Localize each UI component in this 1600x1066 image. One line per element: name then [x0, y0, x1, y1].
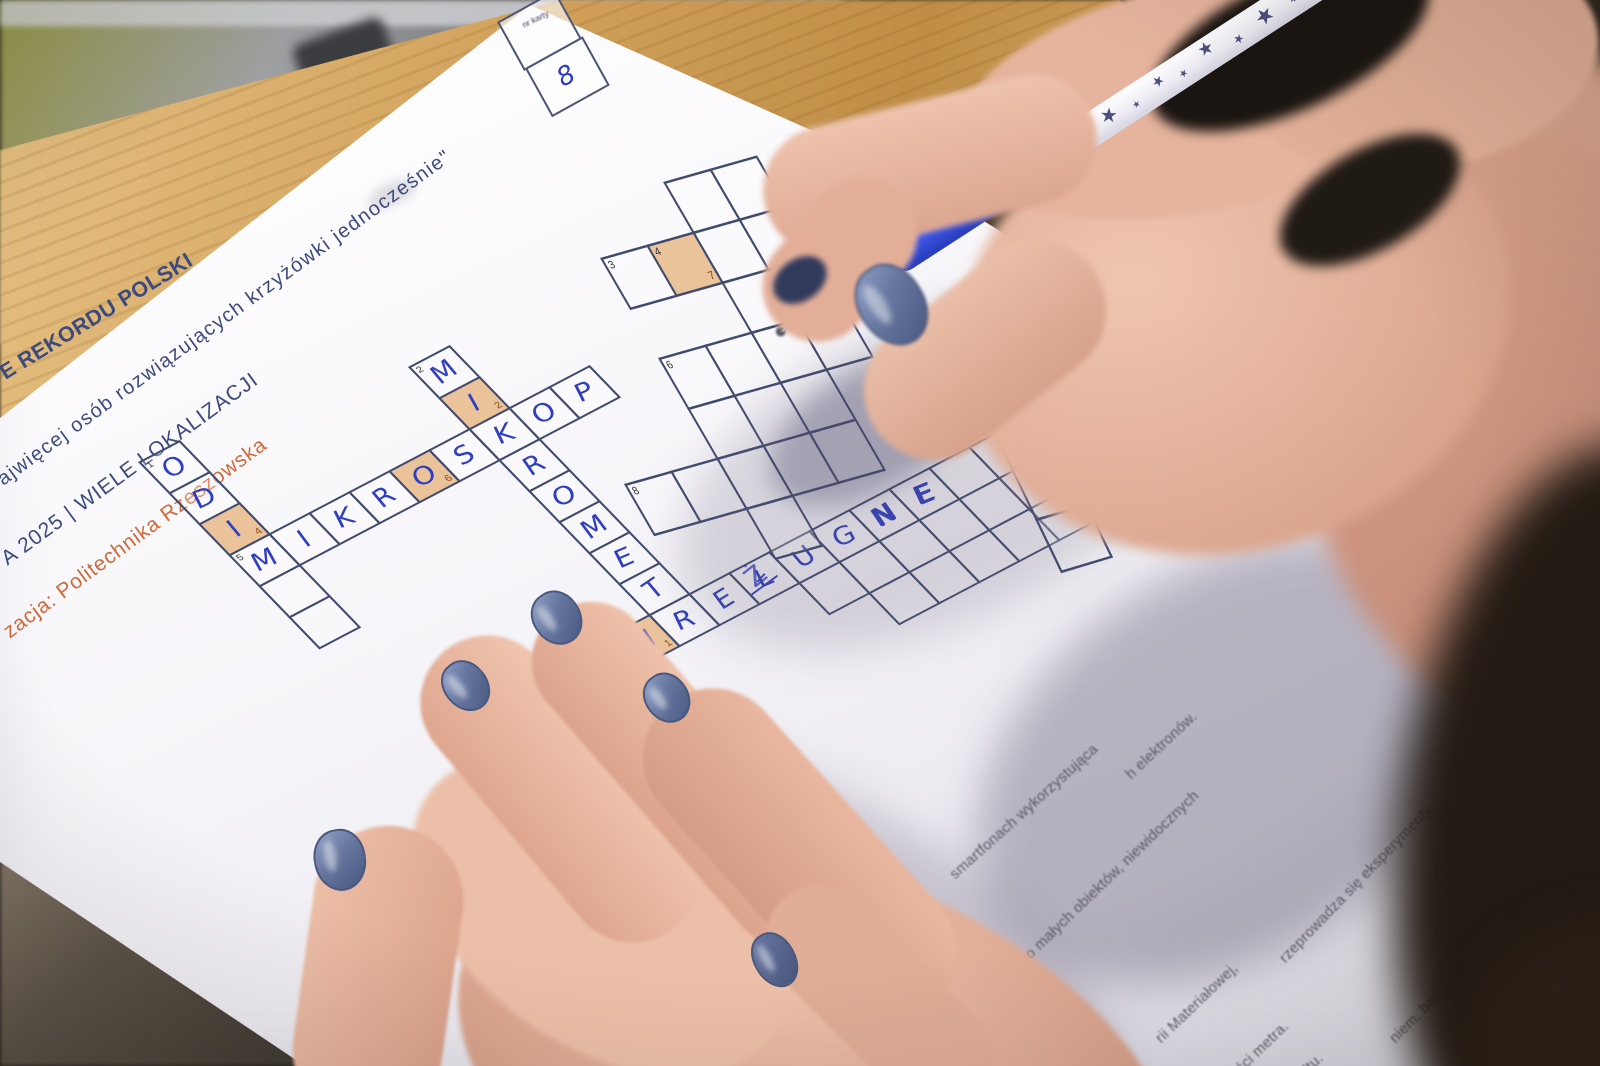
- star-pattern-icon: ★: [1288, 0, 1298, 5]
- card-label: nr karty: [511, 4, 560, 34]
- clue-number: 6: [664, 359, 676, 372]
- photo-crossword-scene: E REKORDU POLSKI ajwięcej osób rozwiązuj…: [0, 0, 1600, 1066]
- star-pattern-icon: ★: [1099, 103, 1118, 128]
- star-pattern-icon: ★: [1233, 31, 1245, 46]
- star-pattern-icon: ★: [1249, 1, 1281, 32]
- star-pattern-icon: ★: [1150, 72, 1167, 91]
- clue-number: 3: [606, 259, 618, 272]
- star-pattern-icon: ★: [1177, 67, 1191, 81]
- star-pattern-icon: ★: [1131, 99, 1143, 112]
- clue-number: 8: [630, 485, 642, 498]
- card-value-handwritten: 8: [552, 59, 581, 93]
- clue-number: 4: [652, 246, 664, 259]
- star-pattern-icon: ★: [1194, 36, 1217, 62]
